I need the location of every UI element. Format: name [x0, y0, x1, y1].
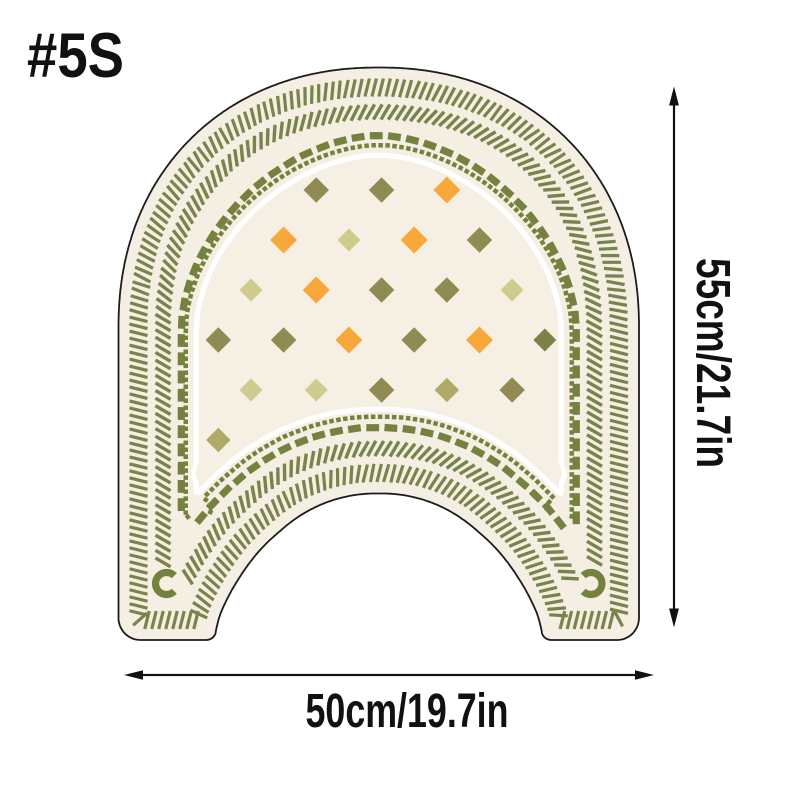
- svg-text:55cm/21.7in: 55cm/21.7in: [686, 258, 740, 468]
- svg-text:50cm/19.7in: 50cm/19.7in: [306, 684, 509, 738]
- svg-text:#5S: #5S: [27, 21, 124, 91]
